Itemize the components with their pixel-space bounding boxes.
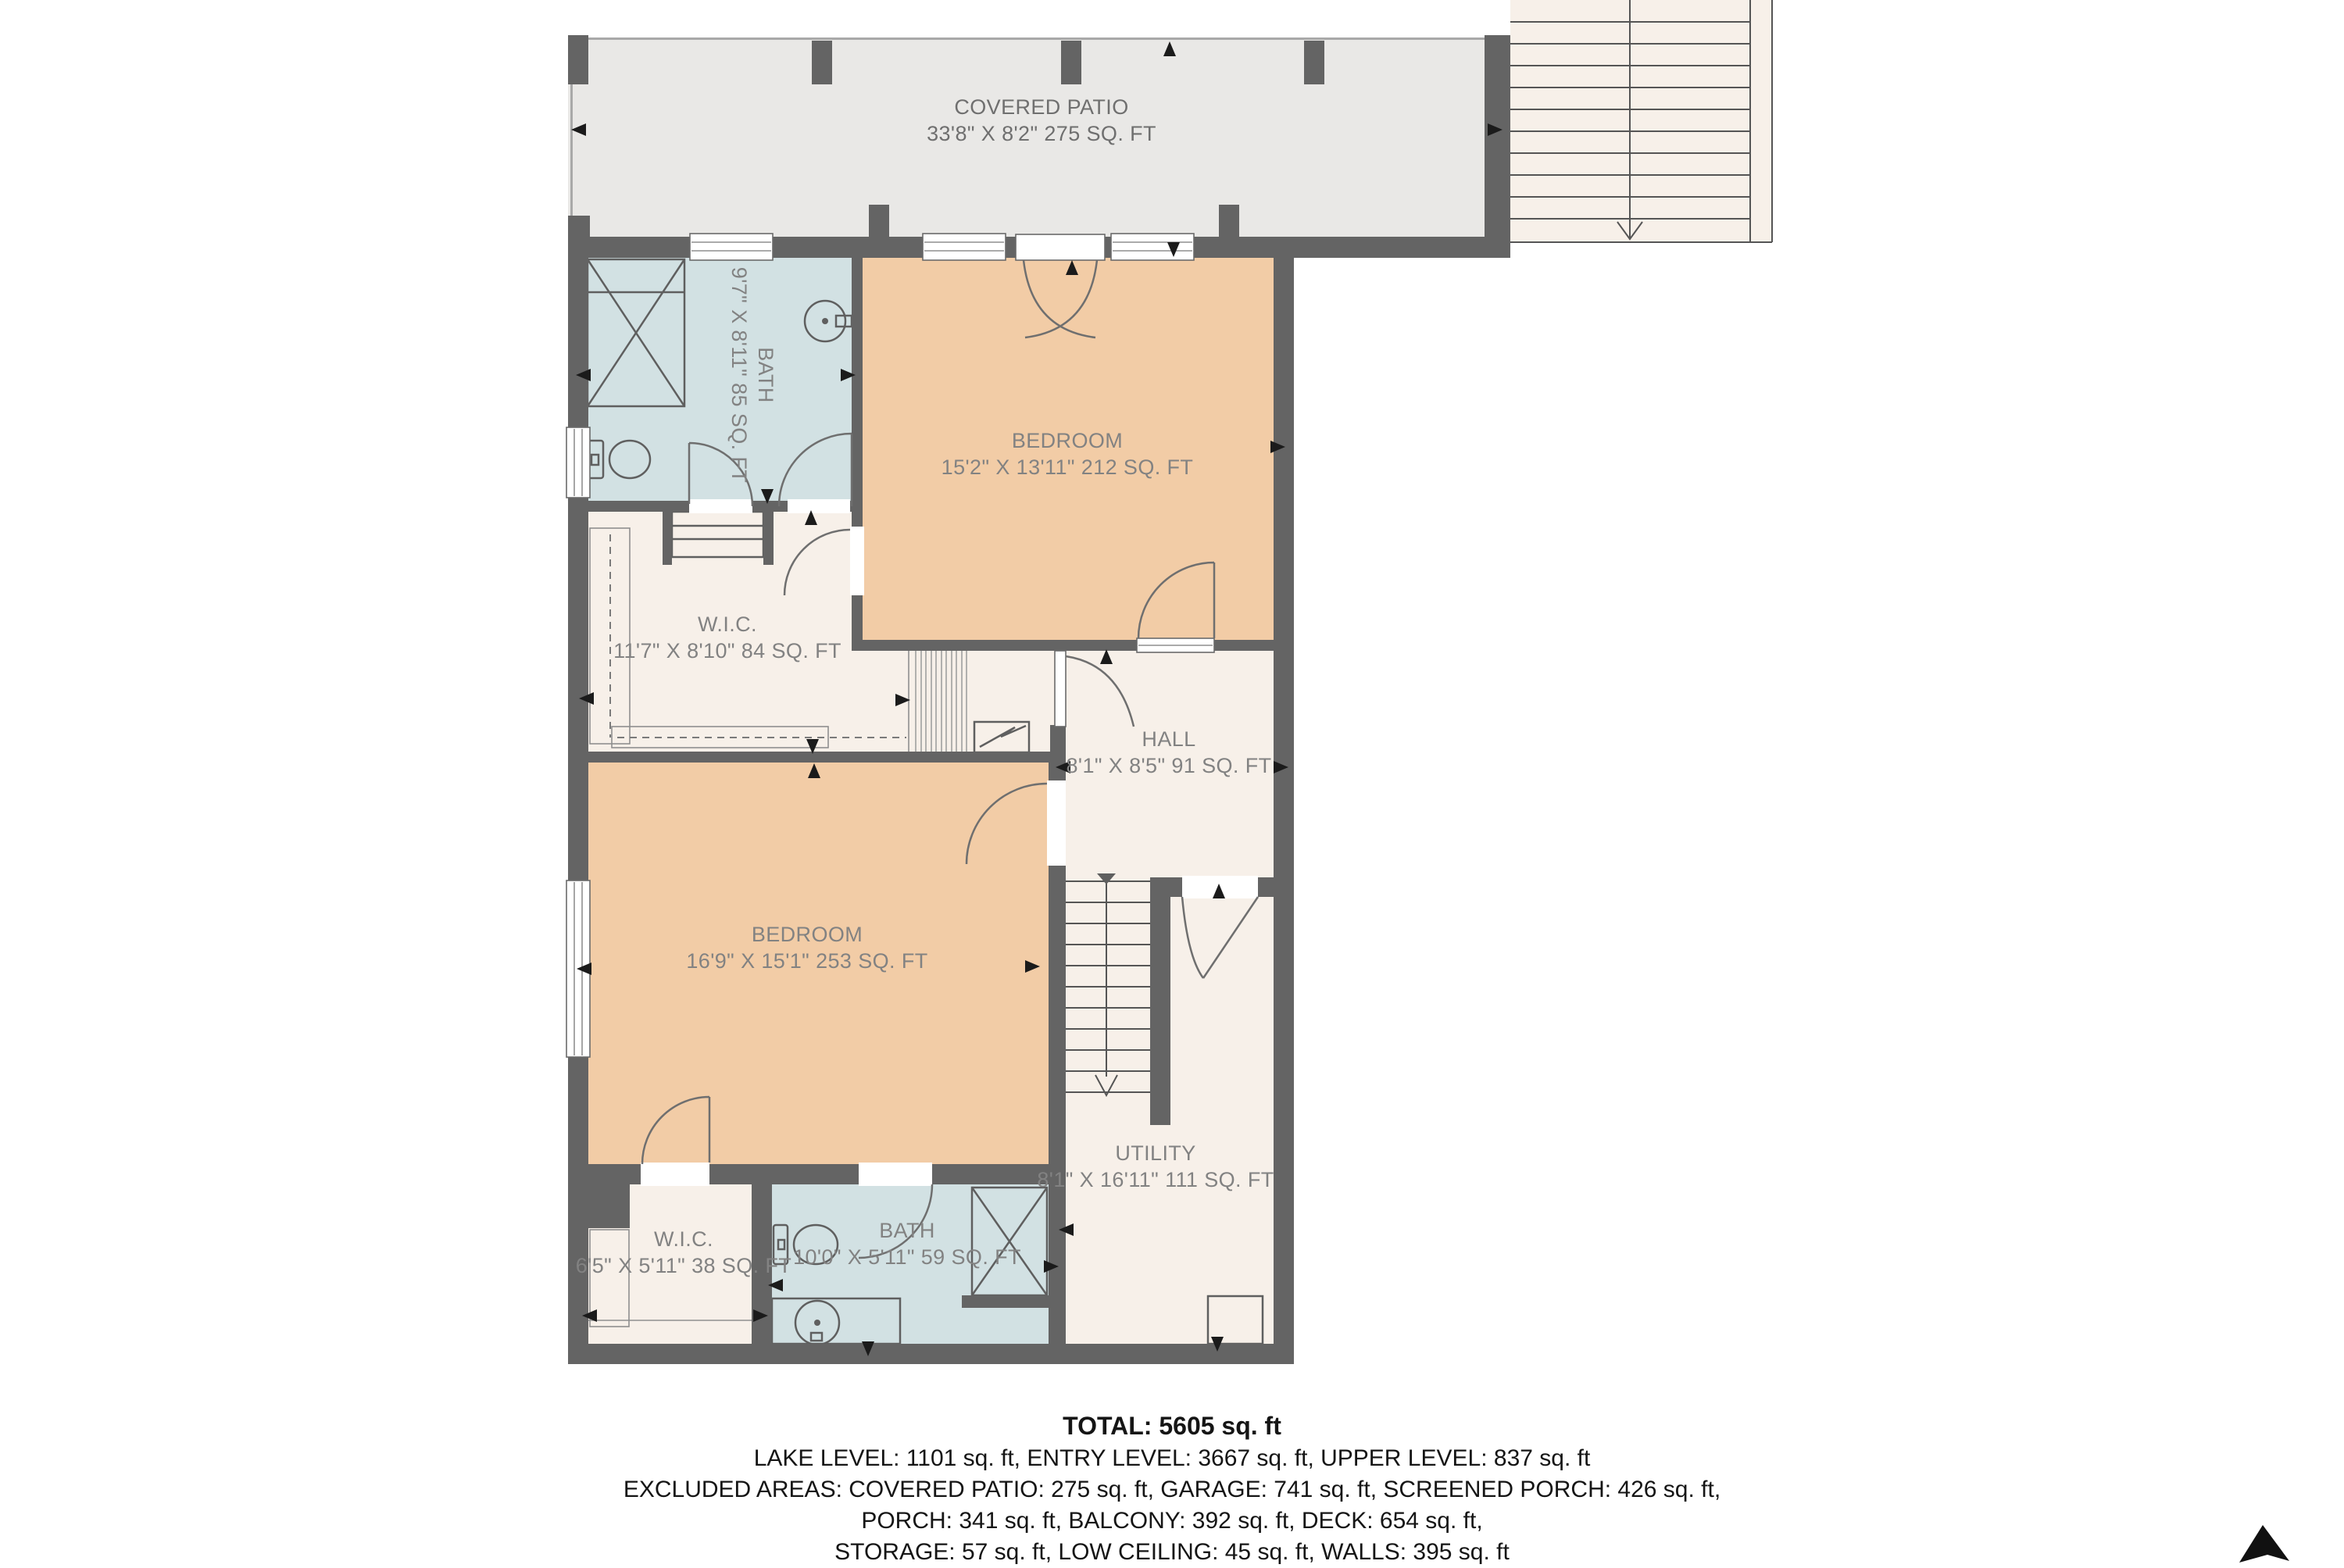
floor-plan-svg bbox=[0, 0, 2344, 1563]
floor-plan-page: { "patio": { "name": "COVERED PATIO", "d… bbox=[0, 0, 2344, 1563]
door-gap bbox=[689, 499, 752, 513]
door-gap bbox=[859, 1163, 932, 1186]
exterior-stairs-fill bbox=[1510, 0, 1772, 242]
window bbox=[566, 427, 590, 498]
stairwell-fill bbox=[1066, 877, 1150, 1125]
door-threshold bbox=[1137, 638, 1214, 652]
patio-door-gap bbox=[1016, 234, 1105, 260]
patio-post bbox=[1061, 41, 1081, 84]
room-utility-fill-lower bbox=[1066, 1125, 1274, 1344]
door-gap bbox=[850, 527, 864, 595]
stair-door-leaf bbox=[1055, 651, 1066, 727]
patio-post bbox=[812, 41, 832, 84]
corridor-closet-fill bbox=[852, 651, 1066, 752]
door-gap bbox=[641, 1163, 709, 1186]
patio-post bbox=[568, 35, 588, 84]
door-gap bbox=[788, 499, 850, 513]
patio-post bbox=[568, 216, 590, 237]
patio-post bbox=[1304, 41, 1324, 84]
room-bedroom-lower-fill bbox=[588, 763, 1049, 1164]
room-covered-patio-fill bbox=[568, 38, 1510, 237]
room-fills bbox=[568, 0, 1772, 1344]
window bbox=[1111, 234, 1194, 260]
room-wic-upper-fill bbox=[588, 512, 852, 752]
door-gap bbox=[1047, 780, 1066, 866]
room-hall-fill bbox=[1066, 651, 1274, 877]
room-bath-upper-fill bbox=[588, 258, 852, 501]
window bbox=[690, 234, 773, 260]
room-bedroom-upper-fill bbox=[863, 258, 1274, 640]
north-arrow-icon bbox=[2239, 1525, 2289, 1563]
window bbox=[923, 234, 1006, 260]
